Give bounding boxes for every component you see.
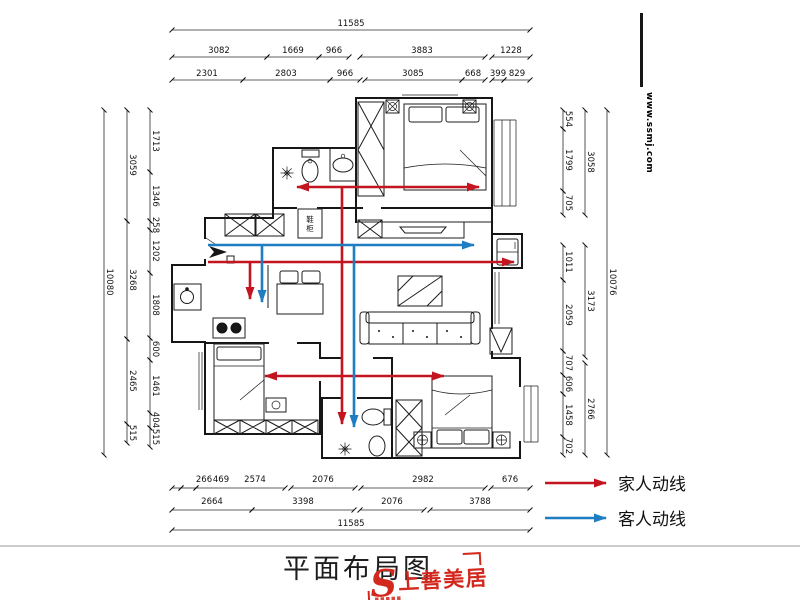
floor-plan-page: 11585 3082 1669 966 3883 1228 2301 2803 … — [0, 0, 800, 600]
dim-label: 668 — [465, 69, 481, 79]
sink — [369, 436, 385, 456]
fan-icon — [339, 443, 352, 456]
dim-label: 469 — [213, 475, 229, 485]
dim-label: 3173 — [585, 290, 595, 312]
cabinet — [490, 328, 512, 354]
dim-label: 2301 — [196, 69, 218, 79]
entry-arrow-icon — [209, 246, 227, 258]
dimension-labels-bottom: 266 469 2574 2076 2982 676 2664 3398 207… — [196, 475, 518, 529]
dim-label: 1346 — [150, 185, 160, 207]
dim-label: 966 — [326, 46, 342, 56]
master-bedroom — [358, 100, 486, 196]
dining-area — [277, 271, 323, 314]
tv — [400, 227, 446, 238]
dim-label: 2076 — [312, 475, 334, 485]
pillow — [217, 347, 261, 360]
fan-icon — [281, 167, 294, 180]
chair — [280, 271, 298, 283]
dim-label: 399 — [490, 69, 506, 79]
living-room — [358, 220, 518, 354]
dim-label: 515 — [127, 425, 137, 441]
dim-label: 10080 — [104, 268, 114, 295]
dim-label: 11585 — [337, 19, 364, 29]
dim-label: 3082 — [208, 46, 230, 56]
dim-label: 1228 — [500, 46, 522, 56]
dim-label: 1669 — [282, 46, 304, 56]
stamp-corner — [463, 553, 481, 566]
dim-label: 1461 — [150, 375, 160, 397]
dim-label: 707 — [563, 355, 573, 371]
sink — [333, 158, 353, 172]
bathroom-top — [281, 148, 357, 182]
logo-name: 上善美居 — [398, 565, 489, 595]
dining-table — [277, 284, 323, 314]
dim-label: 2766 — [585, 398, 595, 420]
dim-label: 1799 — [563, 149, 573, 171]
dim-label: 2465 — [127, 370, 137, 392]
dim-label: 515 — [150, 429, 160, 445]
watermark-bar — [640, 13, 643, 87]
dim-label: 11585 — [337, 519, 364, 529]
dim-label: 1458 — [563, 404, 573, 426]
dim-label: 1011 — [563, 251, 573, 273]
rug — [398, 276, 442, 306]
dim-label: 829 — [509, 69, 525, 79]
dim-label: 3085 — [402, 69, 424, 79]
wardrobe — [214, 420, 318, 434]
tv-cabinet — [382, 222, 464, 238]
bedroom-bottom-left — [214, 344, 318, 434]
dim-label: 3268 — [127, 269, 137, 291]
dim-label: 10076 — [607, 268, 617, 295]
dim-label: 676 — [502, 475, 518, 485]
dim-label: 3398 — [292, 497, 314, 507]
pillow — [409, 107, 442, 122]
cabinet — [358, 220, 382, 238]
dim-label: 3883 — [411, 46, 433, 56]
dim-label: 1713 — [150, 130, 160, 152]
legend-guest-label: 客人动线 — [618, 510, 686, 530]
nightstand — [266, 398, 286, 412]
legend-family-label: 家人动线 — [618, 475, 686, 495]
dimension-labels-right: 554 1799 705 1011 2059 707 606 1458 702 … — [563, 111, 617, 454]
dim-label: 2574 — [244, 475, 266, 485]
dim-label: 2982 — [412, 475, 434, 485]
toilet — [302, 150, 319, 157]
pillow — [464, 430, 489, 444]
dim-label: 2059 — [563, 304, 573, 326]
dim-label: 1202 — [150, 240, 160, 262]
sofa — [360, 312, 480, 344]
entry-cabinet-label: 鞋 — [306, 214, 314, 224]
bedroom-bottom-right — [396, 376, 510, 456]
sink-niche — [330, 148, 356, 181]
watermark: www.ssmj.com — [640, 13, 654, 173]
logo-mark: S — [369, 561, 398, 600]
dim-label: 3058 — [585, 151, 595, 173]
dim-label: 606 — [563, 376, 573, 392]
bed — [404, 104, 486, 190]
nightstand — [493, 432, 510, 448]
dim-label: 404 — [150, 412, 160, 428]
dimension-labels-left: 10080 3059 3268 2465 515 1713 1346 258 1… — [104, 130, 160, 445]
dim-label: 3788 — [469, 497, 491, 507]
dim-label: 266 — [196, 475, 212, 485]
dimension-labels-top: 11585 3082 1669 966 3883 1228 2301 2803 … — [196, 19, 525, 79]
dim-label: 2076 — [381, 497, 403, 507]
dim-label: 600 — [150, 341, 160, 357]
dim-label: 966 — [337, 69, 353, 79]
chair — [302, 271, 320, 283]
dim-label: 2664 — [201, 497, 223, 507]
watermark-url: www.ssmj.com — [644, 92, 654, 173]
dim-label: 1808 — [150, 294, 160, 316]
entry-cabinet-label: 柜 — [306, 223, 314, 233]
wardrobe — [358, 102, 384, 196]
dim-label: 702 — [563, 438, 573, 454]
dim-label: 2803 — [275, 69, 297, 79]
dim-label: 705 — [563, 195, 573, 211]
dim-label: 258 — [150, 217, 160, 233]
kitchen — [174, 284, 245, 338]
walls — [172, 98, 522, 458]
dim-label: 554 — [563, 111, 573, 127]
bed — [214, 344, 264, 420]
floor-plan-canvas: 11585 3082 1669 966 3883 1228 2301 2803 … — [0, 0, 800, 600]
bathroom-bottom — [339, 409, 392, 456]
toilet — [362, 409, 384, 425]
pillow — [437, 430, 462, 444]
dim-label: 3059 — [127, 154, 137, 176]
legend: 家人动线 客人动线 — [545, 475, 686, 530]
